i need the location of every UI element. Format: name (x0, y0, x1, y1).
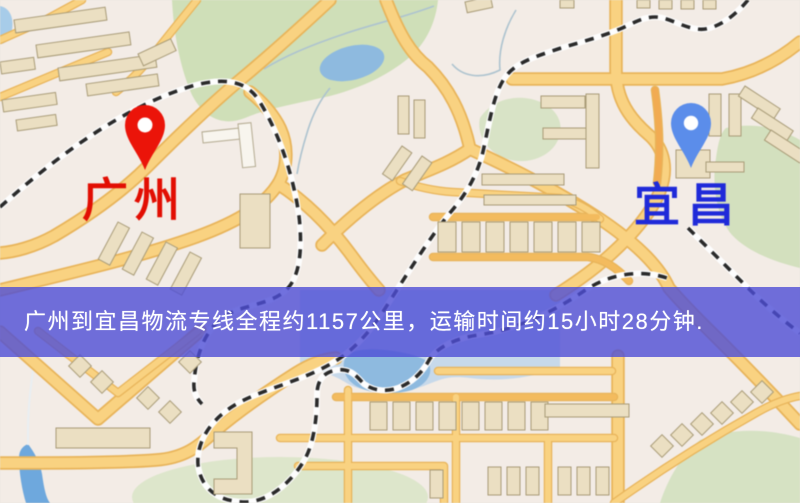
route-info-banner: 广州到宜昌物流专线全程约1157公里，运输时间约15小时28分钟. (0, 287, 800, 357)
destination-city-label: 宜昌 (634, 180, 742, 231)
route-info-text: 广州到宜昌物流专线全程约1157公里，运输时间约15小时28分钟. (0, 311, 704, 333)
destination-pin-hole (684, 116, 698, 130)
logistics-route-map-page: 广州 宜昌 广州到宜昌物流专线全程约1157公里，运输时间约15小时28分钟. (0, 0, 800, 503)
map-canvas[interactable]: 广州 宜昌 (0, 0, 800, 503)
origin-city-label: 广州 (82, 175, 186, 226)
origin-pin-hole (138, 118, 153, 133)
